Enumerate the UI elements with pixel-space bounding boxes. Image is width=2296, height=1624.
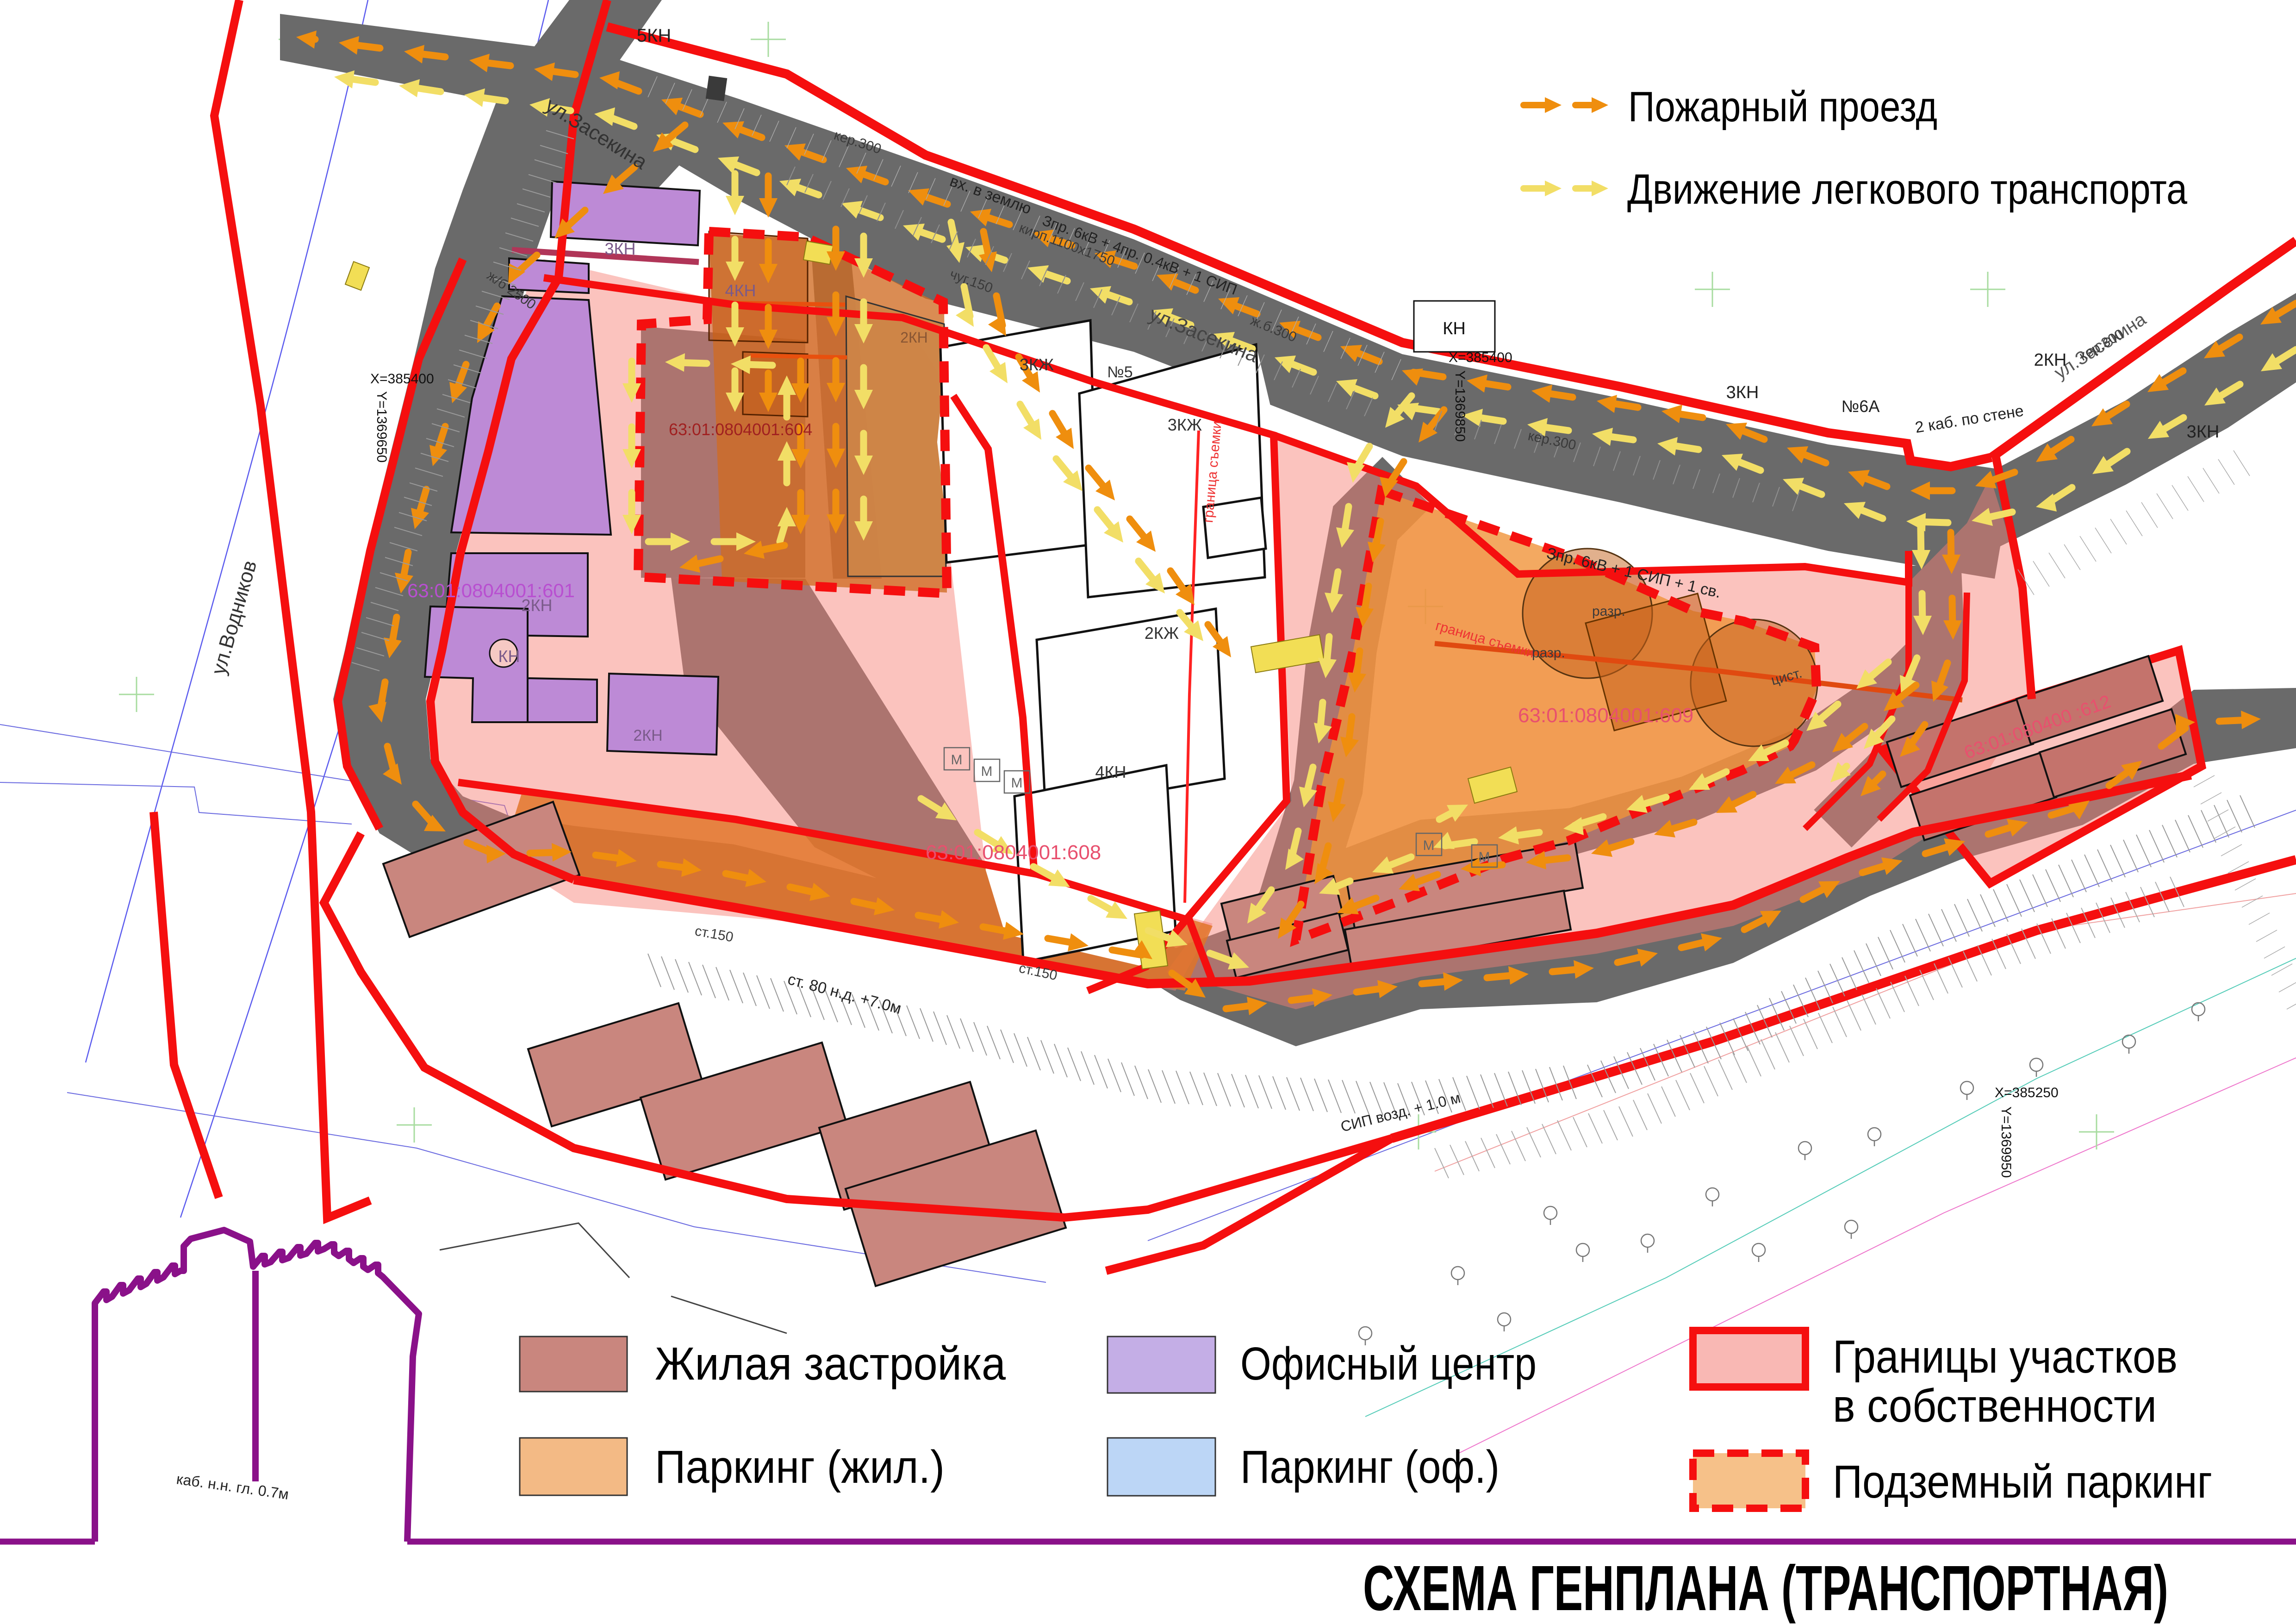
svg-text:3КН: 3КН	[605, 239, 636, 258]
svg-text:X=385250: X=385250	[1995, 1085, 2059, 1100]
svg-text:63:01:0804001:608: 63:01:0804001:608	[926, 841, 1101, 864]
svg-text:4КН: 4КН	[725, 281, 756, 300]
svg-text:2КН: 2КН	[522, 596, 553, 615]
svg-text:2КЖ: 2КЖ	[1145, 624, 1179, 643]
svg-text:№5: №5	[1107, 363, 1132, 381]
svg-text:Паркинг (оф.): Паркинг (оф.)	[1240, 1441, 1500, 1493]
svg-text:2КН: 2КН	[2034, 350, 2067, 370]
svg-text:М: М	[981, 764, 993, 779]
svg-text:КН: КН	[1443, 319, 1466, 338]
svg-text:63:01:0804001:609: 63:01:0804001:609	[1518, 704, 1693, 727]
svg-text:Y=1369950: Y=1369950	[1998, 1106, 2014, 1178]
svg-text:Пожарный проезд: Пожарный проезд	[1628, 83, 1937, 131]
svg-text:в собственности: в собственности	[1833, 1380, 2157, 1432]
svg-text:4КН: 4КН	[1095, 762, 1126, 781]
svg-text:разр.: разр.	[1592, 604, 1625, 619]
svg-text:2КН: 2КН	[900, 329, 928, 346]
svg-text:М: М	[1479, 849, 1490, 865]
svg-text:Офисный центр: Офисный центр	[1240, 1338, 1537, 1390]
svg-text:5КН: 5КН	[637, 25, 671, 46]
svg-text:Паркинг (жил.): Паркинг (жил.)	[655, 1441, 945, 1493]
svg-text:X=385400: X=385400	[370, 371, 434, 387]
svg-text:Границы участков: Границы участков	[1833, 1331, 2178, 1383]
svg-text:М: М	[1423, 838, 1435, 853]
svg-text:3КН: 3КН	[1726, 383, 1759, 402]
svg-text:63:01:0804001:604: 63:01:0804001:604	[669, 420, 812, 439]
svg-text:№6А: №6А	[1842, 397, 1880, 416]
svg-text:Жилая застройка: Жилая застройка	[655, 1338, 1006, 1390]
svg-text:Подземный паркинг: Подземный паркинг	[1833, 1456, 2212, 1508]
svg-text:СХЕМА ГЕНПЛАНА (ТРАНСПОРТНАЯ): СХЕМА ГЕНПЛАНА (ТРАНСПОРТНАЯ)	[1363, 1553, 2168, 1624]
svg-text:М: М	[1011, 775, 1023, 791]
svg-text:3КЖ: 3КЖ	[1168, 415, 1202, 434]
svg-text:Движение легкового транспорта: Движение легкового транспорта	[1627, 166, 2188, 213]
svg-text:Y=1369650: Y=1369650	[374, 391, 389, 462]
svg-text:2КН: 2КН	[633, 727, 662, 744]
svg-text:Y=1369850: Y=1369850	[1452, 370, 1468, 442]
svg-text:разр.: разр.	[1532, 645, 1565, 661]
svg-text:М: М	[951, 752, 963, 768]
svg-text:КН: КН	[498, 647, 520, 666]
svg-text:3КЖ: 3КЖ	[1020, 355, 1054, 374]
svg-text:3КН: 3КН	[2187, 422, 2220, 442]
